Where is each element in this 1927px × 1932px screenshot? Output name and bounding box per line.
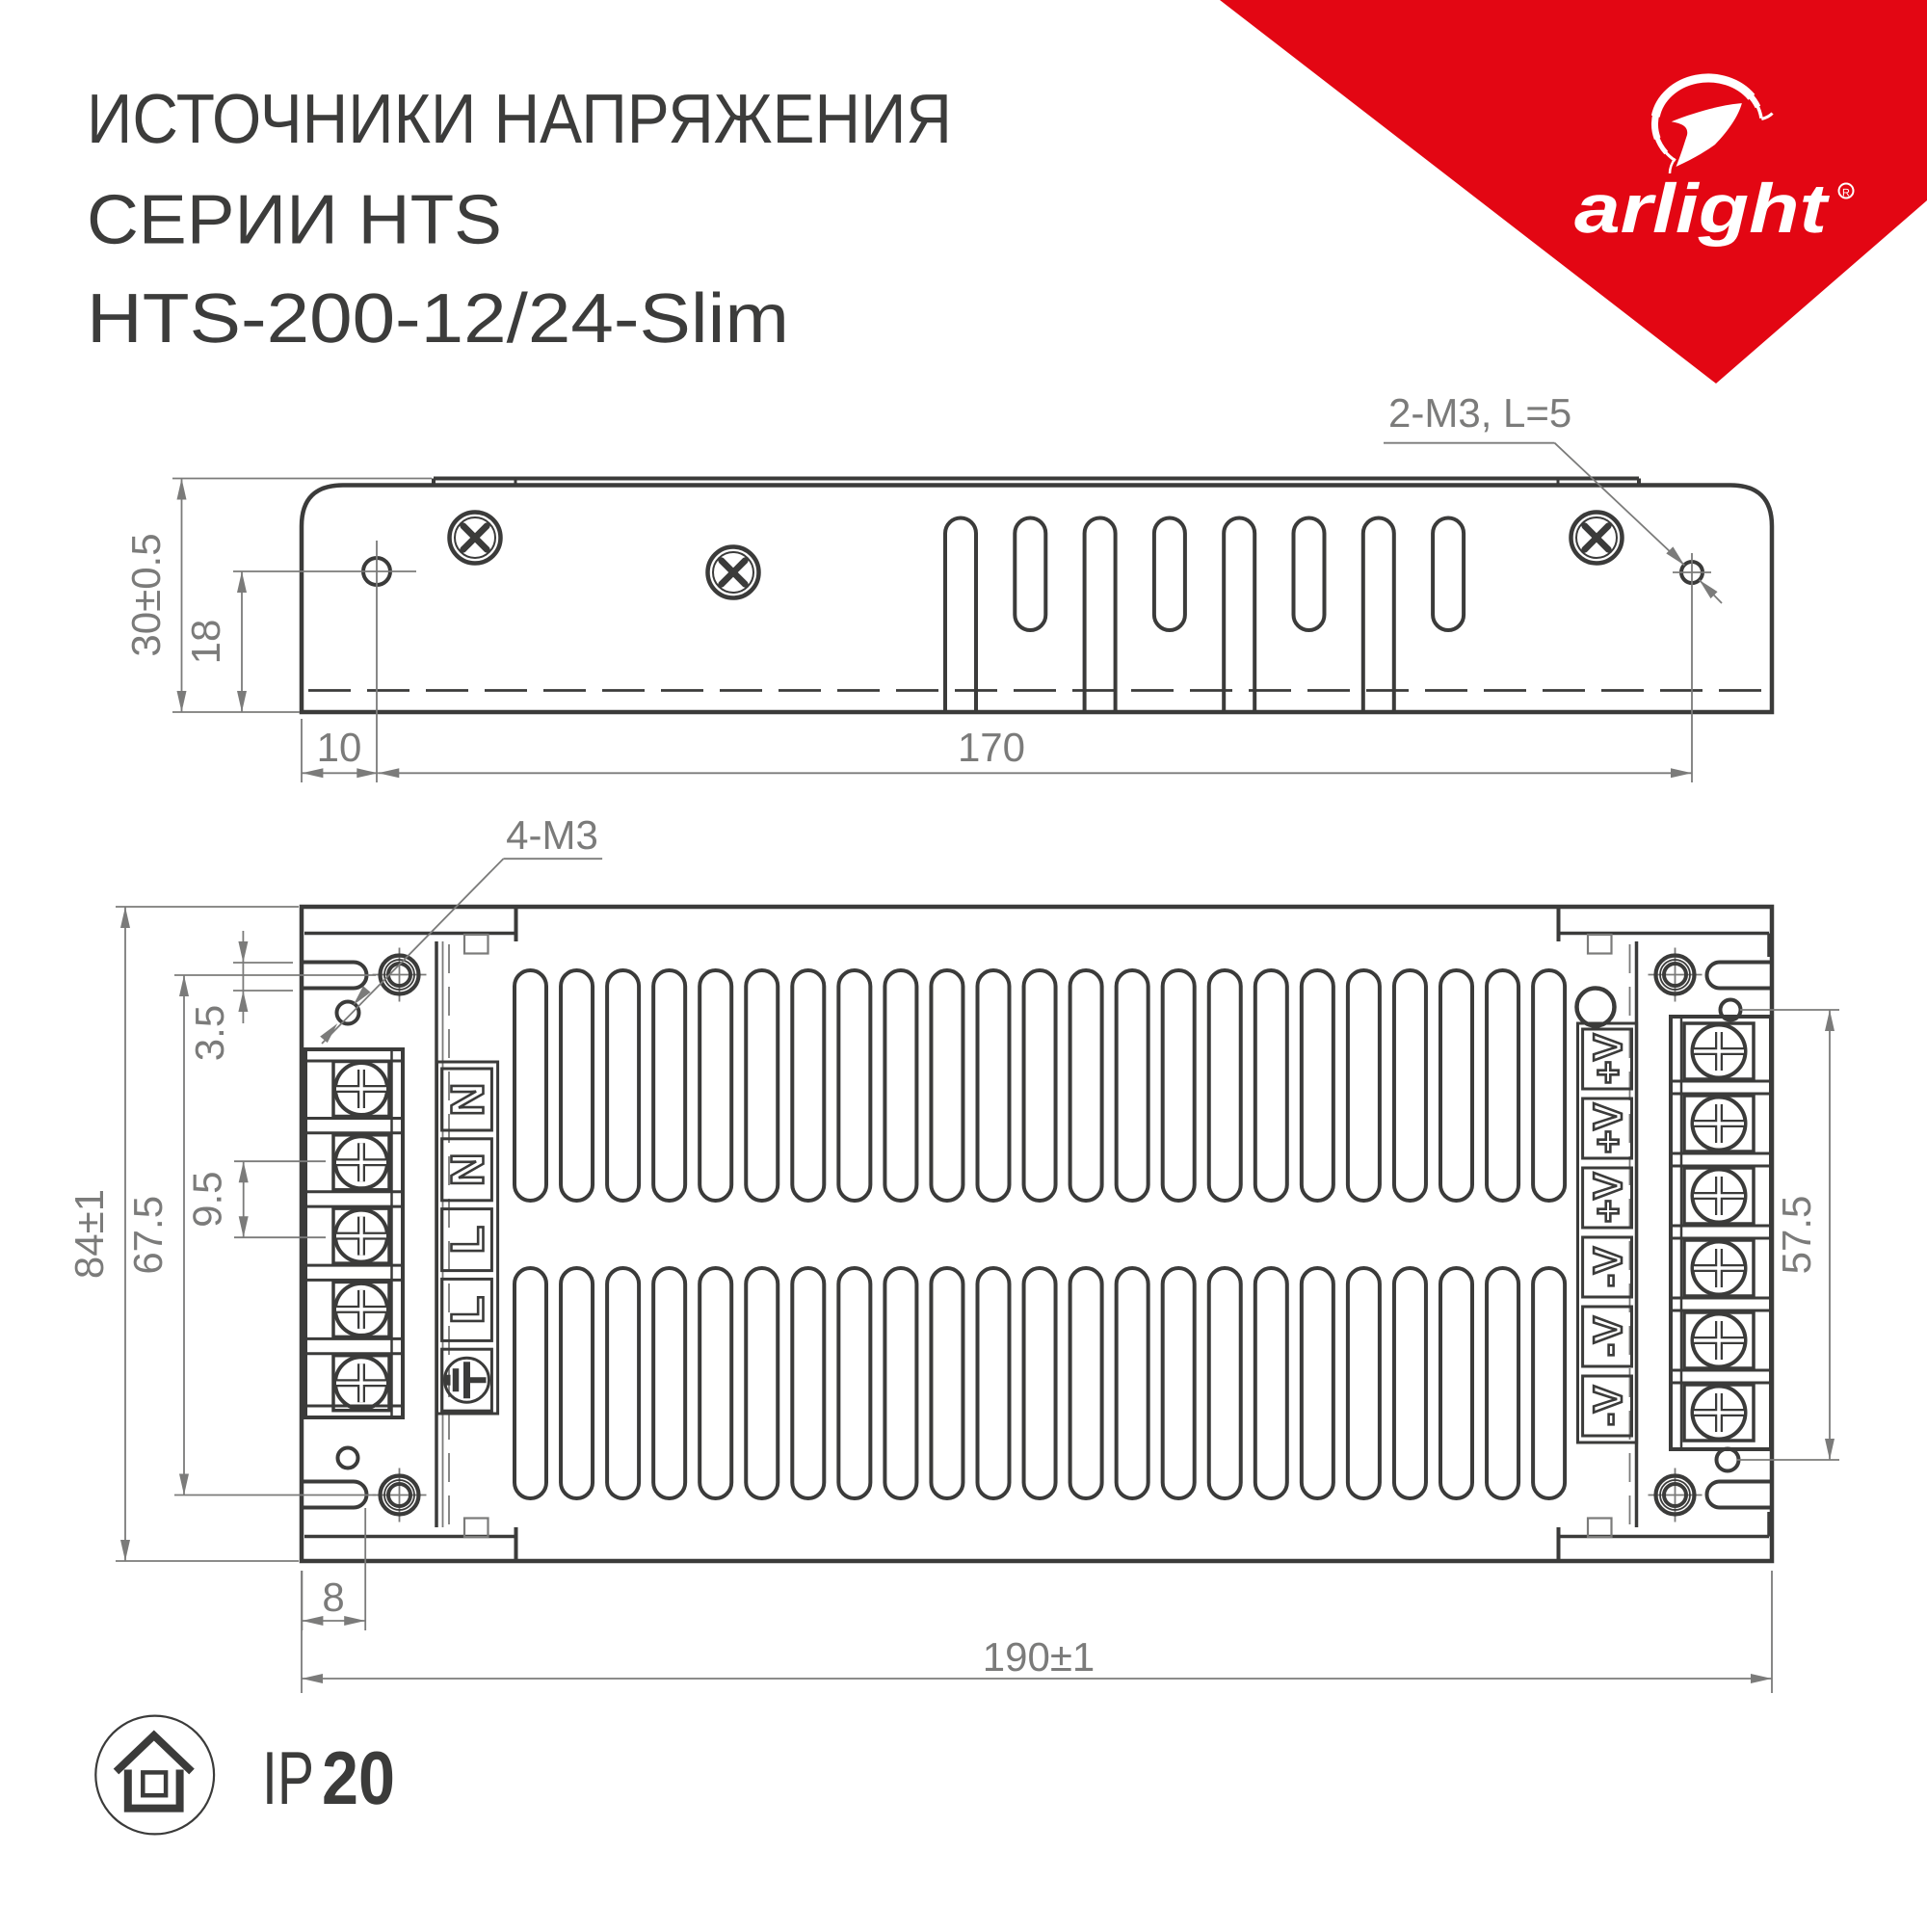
svg-text:N: N [443, 1152, 494, 1186]
svg-text:67.5: 67.5 [125, 1196, 171, 1275]
svg-text:+V: +V [1585, 1173, 1630, 1224]
svg-text:170: 170 [958, 725, 1025, 770]
svg-text:57.5: 57.5 [1774, 1196, 1819, 1275]
svg-text:R: R [1842, 188, 1850, 199]
svg-text:N: N [443, 1083, 494, 1117]
svg-text:4-M3: 4-M3 [506, 812, 598, 858]
svg-text:10: 10 [317, 725, 362, 770]
svg-text:-V: -V [1585, 1247, 1630, 1287]
svg-text:СЕРИИ HTS: СЕРИИ HTS [87, 181, 502, 259]
svg-text:-V: -V [1585, 1316, 1630, 1357]
svg-text:+V: +V [1585, 1034, 1630, 1085]
svg-text:8: 8 [322, 1575, 344, 1620]
svg-text:HTS-200-12/24-Slim: HTS-200-12/24-Slim [87, 279, 789, 357]
svg-text:3.5: 3.5 [187, 1005, 232, 1061]
svg-text:+V: +V [1585, 1103, 1630, 1154]
svg-text:84±1: 84±1 [66, 1189, 112, 1279]
svg-text:L: L [443, 1226, 494, 1254]
svg-text:30±0.5: 30±0.5 [123, 533, 169, 656]
svg-text:190±1: 190±1 [983, 1634, 1095, 1680]
svg-text:2-M3, L=5: 2-M3, L=5 [1388, 390, 1571, 436]
svg-text:IP: IP [262, 1735, 314, 1820]
svg-text:18: 18 [183, 620, 228, 665]
svg-text:20: 20 [322, 1735, 395, 1820]
svg-text:ИСТОЧНИКИ НАПРЯЖЕНИЯ: ИСТОЧНИКИ НАПРЯЖЕНИЯ [87, 80, 952, 158]
svg-text:-V: -V [1585, 1386, 1630, 1426]
svg-text:arlight: arlight [1574, 171, 1831, 248]
svg-text:L: L [443, 1296, 494, 1324]
svg-text:9.5: 9.5 [185, 1172, 230, 1228]
